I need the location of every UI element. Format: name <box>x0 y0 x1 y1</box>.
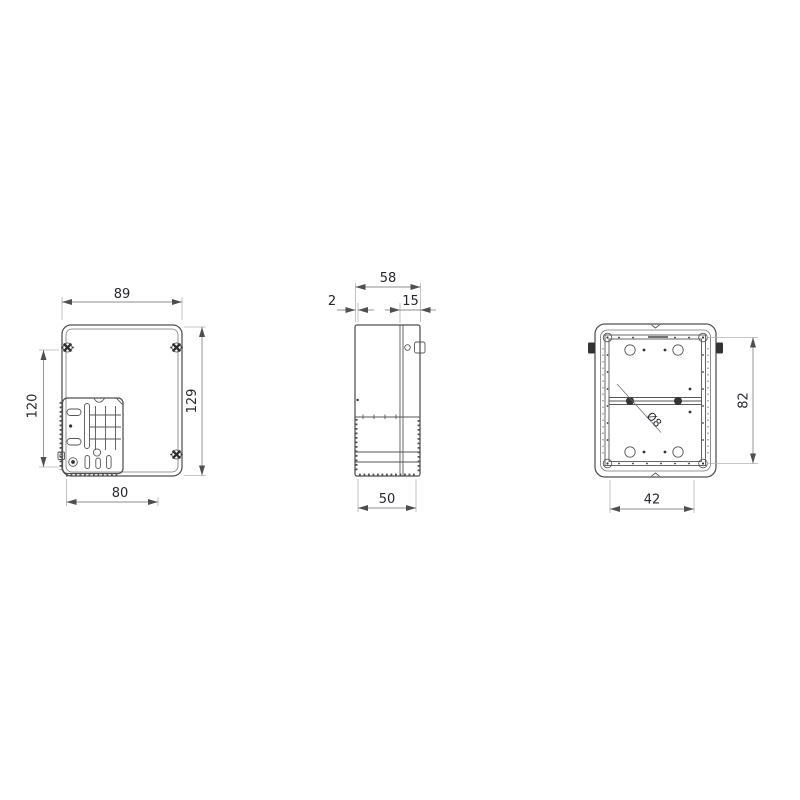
top-notch <box>94 399 104 403</box>
knockout-slot <box>107 456 112 469</box>
dimension-back-mount-height: 82 <box>737 392 752 409</box>
dimension-side-depth-total: 58 <box>380 271 397 286</box>
pilot-dot <box>69 424 72 427</box>
screw-icon <box>61 343 73 352</box>
dimension-side-lid-lip: 2 <box>328 294 336 309</box>
side-view: 58 2 15 50 <box>328 271 436 512</box>
top-notch <box>652 325 660 328</box>
screw-hole-icon <box>603 333 707 468</box>
front-view: 89 120 129 80 <box>26 287 207 506</box>
dimension-front-width-top: 89 <box>114 287 131 302</box>
mount-rail-frame <box>605 335 706 466</box>
dimension-side-base-depth: 50 <box>379 492 396 507</box>
middle-rib <box>609 397 702 405</box>
mount-tab <box>716 343 723 354</box>
dimension-front-width-bottom: 80 <box>112 486 129 501</box>
knockout-slot-vertical <box>85 404 90 449</box>
knockout-slot <box>67 439 81 446</box>
knockout-grid <box>90 406 121 450</box>
back-view: Ø8 82 42 <box>588 324 758 513</box>
technical-drawing-page: 89 120 129 80 <box>0 0 800 800</box>
knockout-slot <box>85 456 90 469</box>
screw-icon <box>170 450 182 459</box>
back-dimensions: 82 42 <box>610 338 758 514</box>
technical-drawing: 89 120 129 80 <box>0 0 800 800</box>
rail-dots <box>607 337 704 465</box>
dimension-back-hole-diameter: Ø8 <box>644 410 664 430</box>
bottom-notch <box>652 473 660 476</box>
knockout-slot <box>67 409 81 416</box>
dimension-back-mount-width: 42 <box>644 493 661 508</box>
screw-icon <box>170 343 182 352</box>
mount-tab <box>588 343 595 354</box>
latch-hole <box>405 345 411 351</box>
cable-entry-plate <box>58 398 123 475</box>
back-outline <box>595 324 716 477</box>
dimension-front-height-right: 129 <box>185 389 200 414</box>
rib-hole <box>674 397 682 405</box>
knockout-circle <box>93 449 100 456</box>
back-inner-outline <box>601 330 711 471</box>
dimension-side-rear-depth: 15 <box>402 294 419 309</box>
knockout-slot <box>96 458 101 469</box>
dimension-front-height-left: 120 <box>26 394 41 419</box>
